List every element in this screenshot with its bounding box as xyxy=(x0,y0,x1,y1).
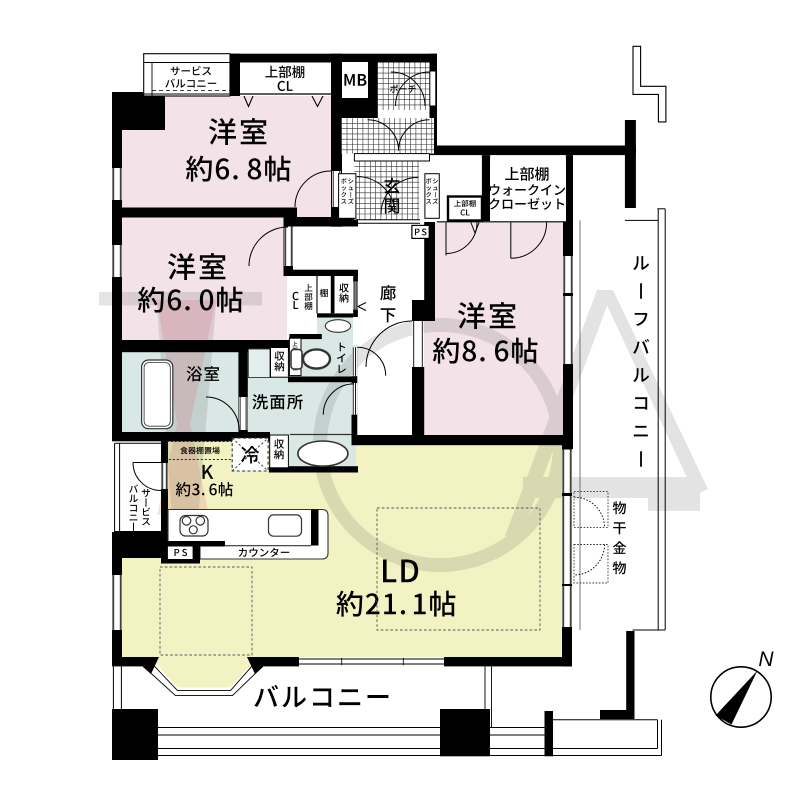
svg-text:N: N xyxy=(758,648,774,671)
